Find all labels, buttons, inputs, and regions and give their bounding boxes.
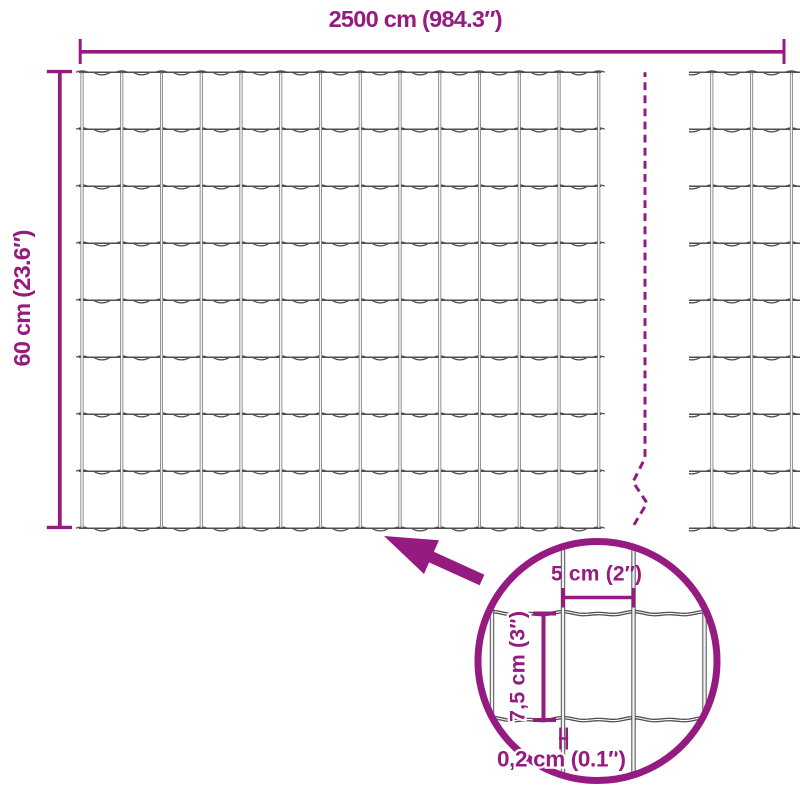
svg-text:7,5 cm (3″): 7,5 cm (3″) xyxy=(506,611,530,722)
svg-text:5 cm (2″): 5 cm (2″) xyxy=(551,563,642,586)
svg-text:0,2 cm (0.1″): 0,2 cm (0.1″) xyxy=(497,747,626,772)
svg-text:60 cm (23.6″): 60 cm (23.6″) xyxy=(9,230,35,367)
svg-text:2500 cm (984.3″): 2500 cm (984.3″) xyxy=(329,6,503,32)
